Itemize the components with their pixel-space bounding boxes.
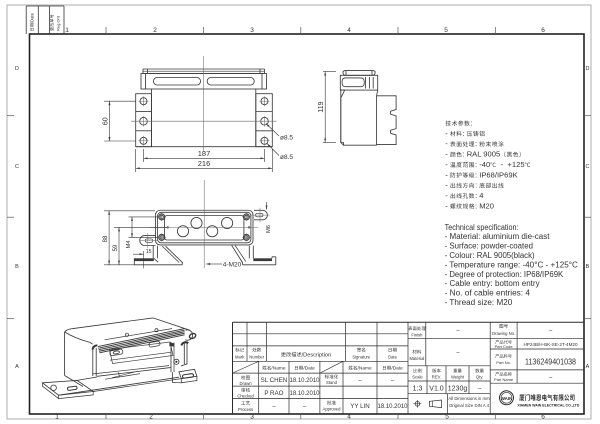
svg-text:–: – [391,378,395,384]
svg-text:18.10.2010: 18.10.2010 [289,391,320,397]
svg-text:/Date: /Date [30,12,35,23]
svg-text::: : [462,129,466,138]
svg-text:Original Size DIN A 4: Original Size DIN A 4 [449,403,490,408]
svg-text:6: 6 [541,27,545,34]
svg-text:Material: Material [409,356,424,361]
svg-text:ø8.5: ø8.5 [280,154,293,161]
svg-text:-: - [445,139,450,148]
svg-text:: RAL 9005: : RAL 9005 [462,150,500,159]
svg-text:-: - [445,181,450,190]
svg-text:-: - [445,191,450,200]
svg-text:Part Name: Part Name [494,377,514,382]
svg-text:Part No.: Part No. [496,360,511,365]
svg-text:4-M20: 4-M20 [223,261,242,268]
svg-text:–: – [456,351,460,357]
svg-text:: IP68/IP69K: : IP68/IP69K [475,170,518,179]
svg-text:M6: M6 [266,225,272,233]
svg-text:- +125: - +125 [496,160,524,169]
svg-text:B: B [15,264,19,270]
svg-text:1:3: 1:3 [413,386,423,393]
svg-text:-: - [445,160,450,169]
svg-text:- Material: aluminium die-cast: - Material: aluminium die-cast [445,232,551,241]
svg-text:P RAO: P RAO [264,390,283,397]
svg-text:1230g: 1230g [448,386,468,393]
svg-text::: : [470,119,472,128]
svg-text:/Description: /Description [302,352,332,358]
svg-text:Finish: Finish [411,333,423,338]
svg-text:–: – [456,329,460,335]
svg-text:C: C [586,164,590,170]
svg-text:–: – [549,375,553,381]
svg-text:Signature: Signature [352,355,371,360]
svg-text:/Date: /Date [303,366,315,372]
svg-text:Process: Process [238,407,253,412]
svg-text:–: – [272,404,276,410]
svg-text:- Temperature range: -40°C - +: - Temperature range: -40°C - +125°C [445,260,579,269]
svg-text:60: 60 [103,117,110,125]
svg-text:- Surface: powder-coated: - Surface: powder-coated [445,242,533,251]
svg-text:Technical specification:: Technical specification: [445,223,519,232]
svg-text:B: B [586,264,590,270]
svg-text:: 4: : 4 [475,191,483,200]
svg-text:18.10.2010: 18.10.2010 [289,378,320,384]
svg-text:-: - [445,170,450,179]
svg-text:3: 3 [250,414,254,421]
svg-text:XIAMEN WAIN ELECTRICAL CO.,LTD: XIAMEN WAIN ELECTRICAL CO.,LTD [517,403,579,408]
svg-text:Reg.Ord: Reg.Ord [56,16,61,31]
svg-text:216: 216 [198,159,211,168]
svg-text:–: – [478,385,482,392]
svg-text:1: 1 [65,27,69,34]
svg-text:Drawn: Drawn [240,381,253,386]
svg-text:- Thread size: M20: - Thread size: M20 [445,298,513,307]
svg-text:Date: Date [388,355,398,360]
svg-text:HP24B/H-BK-SE-2T-4M20: HP24B/H-BK-SE-2T-4M20 [524,342,579,347]
svg-text:C: C [15,164,19,170]
svg-text::: : [475,139,479,148]
svg-text:: M20: : M20 [475,201,494,210]
svg-text:REV.: REV. [432,375,441,380]
svg-text:D: D [586,66,590,72]
svg-text:5: 5 [445,414,449,421]
svg-text:6: 6 [541,414,545,421]
svg-text:–: – [358,378,362,384]
svg-text:YY LIN: YY LIN [350,403,370,410]
svg-text:ø8.5: ø8.5 [280,135,293,142]
svg-text:A: A [586,364,590,370]
svg-text:: -40: : -40 [475,160,490,169]
svg-text:187: 187 [198,149,211,158]
svg-text:Qty.: Qty. [476,375,483,380]
svg-text:Drawing No.: Drawing No. [492,331,515,336]
svg-text::: : [475,181,479,190]
svg-text:- Colour: RAL 9005(black): - Colour: RAL 9005(black) [445,251,535,260]
svg-text:/Date: /Date [391,366,403,372]
svg-text:2: 2 [153,27,157,34]
svg-text:18.10.2010: 18.10.2010 [377,404,408,410]
svg-text:-: - [445,129,450,138]
svg-text:Part Code: Part Code [495,344,514,349]
svg-text:D: D [15,66,19,72]
svg-text:Scale: Scale [412,375,423,380]
svg-text:Weight: Weight [451,375,465,380]
svg-text:Stand: Stand [326,380,338,385]
svg-text:- No. of cable entries: 4: - No. of cable entries: 4 [445,289,531,298]
svg-text:Mark: Mark [235,355,245,360]
svg-text:4: 4 [347,27,351,34]
svg-text:88: 88 [103,235,109,242]
svg-text:Number: Number [249,355,264,360]
svg-text:1: 1 [55,414,59,421]
svg-text:Checked: Checked [237,393,254,398]
svg-text:-: - [445,150,450,159]
svg-text:15: 15 [146,249,152,255]
svg-text:A: A [15,364,19,370]
svg-text:–: – [549,329,553,335]
svg-text:- Degree of protection: IP68/I: - Degree of protection: IP68/IP69K [445,270,564,279]
svg-text:All Dimensions in mm: All Dimensions in mm [448,396,490,401]
svg-text:Approved: Approved [323,406,342,411]
svg-text:- Cable entry: bottom entry: - Cable entry: bottom entry [445,279,540,288]
svg-text:/Name: /Name [271,366,285,372]
svg-text:–: – [303,404,307,410]
svg-text:1136249401038: 1136249401038 [525,357,576,366]
svg-text:2: 2 [149,414,153,421]
svg-text:SL CHEN: SL CHEN [261,377,288,384]
svg-text:59: 59 [113,244,119,251]
svg-text:-: - [445,201,450,210]
svg-text:4: 4 [347,414,351,421]
svg-text:119: 119 [318,101,325,112]
svg-text:M4: M4 [126,240,132,249]
svg-text:WAIN: WAIN [501,396,513,401]
svg-text:3: 3 [250,27,254,34]
svg-text:5: 5 [444,27,448,34]
svg-text:/Name: /Name [358,366,372,372]
svg-text:V1.0: V1.0 [429,386,444,393]
